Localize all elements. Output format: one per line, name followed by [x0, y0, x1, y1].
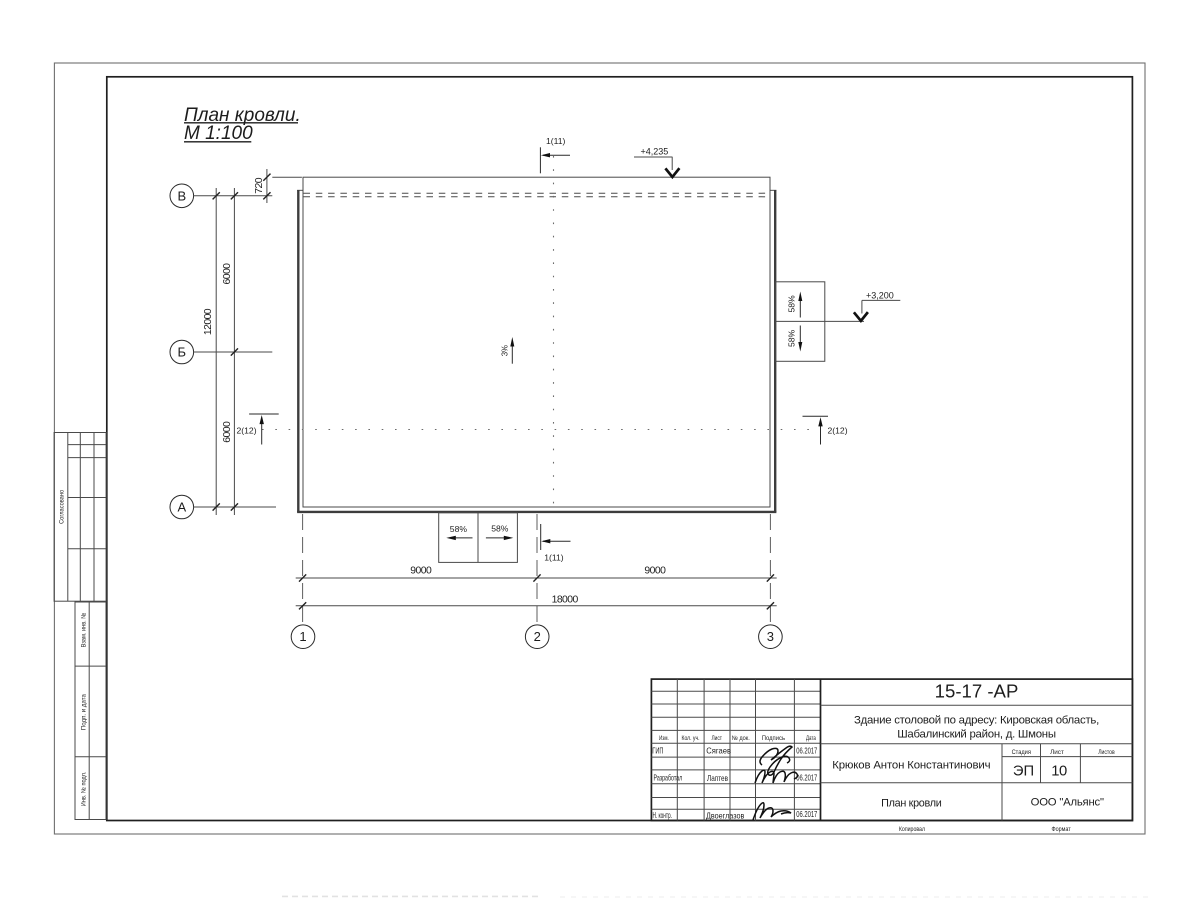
- svg-text:58%: 58%: [491, 524, 509, 534]
- svg-text:2: 2: [534, 629, 541, 644]
- svg-text:Дата: Дата: [806, 735, 816, 742]
- svg-text:Листов: Листов: [1098, 749, 1115, 756]
- svg-text:Шабалинский район, д. Шмоны: Шабалинский район, д. Шмоны: [897, 728, 1056, 740]
- svg-text:М 1:100: М 1:100: [184, 123, 253, 144]
- svg-text:ООО "Альянс": ООО "Альянс": [1031, 796, 1104, 808]
- svg-text:1: 1: [299, 629, 306, 644]
- svg-text:Стадия: Стадия: [1012, 749, 1032, 756]
- svg-text:Крюков Антон Константинович: Крюков Антон Константинович: [832, 760, 990, 772]
- svg-text:06.2017: 06.2017: [796, 746, 817, 755]
- svg-text:ГИП: ГИП: [652, 746, 663, 755]
- svg-text:Н. контр.: Н. контр.: [653, 811, 673, 820]
- svg-text:Изм.: Изм.: [659, 735, 669, 742]
- svg-text:9000: 9000: [644, 566, 666, 577]
- svg-text:А: А: [177, 500, 186, 515]
- svg-text:2(12): 2(12): [828, 426, 848, 436]
- svg-text:58%: 58%: [450, 524, 468, 534]
- svg-text:58%: 58%: [787, 329, 797, 347]
- svg-text:12000: 12000: [203, 308, 214, 335]
- svg-text:№ док.: № док.: [732, 735, 750, 742]
- svg-text:Кол. уч.: Кол. уч.: [682, 735, 700, 742]
- svg-text:ЭП: ЭП: [1013, 764, 1034, 780]
- svg-text:+4,235: +4,235: [641, 147, 669, 157]
- svg-text:План кровли: План кровли: [881, 798, 942, 810]
- svg-text:06.2017: 06.2017: [796, 774, 817, 783]
- svg-text:Подп. и дата: Подп. и дата: [81, 694, 88, 730]
- svg-text:+3,200: +3,200: [866, 291, 894, 301]
- svg-text:1(11): 1(11): [544, 552, 564, 562]
- svg-text:Лаптев: Лаптев: [707, 774, 728, 783]
- svg-text:15-17 -АР: 15-17 -АР: [935, 681, 1019, 702]
- svg-text:9000: 9000: [410, 566, 432, 577]
- svg-text:Лист: Лист: [712, 735, 723, 742]
- svg-text:2(12): 2(12): [237, 426, 257, 436]
- svg-text:Б: Б: [178, 345, 187, 360]
- svg-text:Лист: Лист: [1050, 749, 1064, 756]
- svg-text:Взам. инв. №: Взам. инв. №: [81, 613, 88, 648]
- svg-text:06.2017: 06.2017: [796, 810, 817, 819]
- svg-text:Сягаев: Сягаев: [706, 747, 731, 756]
- svg-text:Здание столовой по адресу: Кир: Здание столовой по адресу: Кировская обл…: [854, 715, 1099, 727]
- svg-text:720: 720: [254, 177, 265, 193]
- svg-text:Согласовано: Согласовано: [59, 490, 66, 524]
- svg-text:Разработал: Разработал: [654, 774, 683, 783]
- svg-text:18000: 18000: [552, 594, 579, 605]
- svg-text:Копировал: Копировал: [899, 826, 925, 833]
- svg-text:6000: 6000: [222, 421, 233, 443]
- svg-text:Инв. № подл.: Инв. № подл.: [81, 771, 88, 806]
- svg-text:Подпись: Подпись: [762, 735, 786, 742]
- svg-text:6000: 6000: [222, 263, 233, 285]
- svg-text:Двоеглазов: Двоеглазов: [706, 811, 744, 820]
- svg-text:3: 3: [767, 629, 774, 644]
- svg-text:10: 10: [1051, 764, 1067, 780]
- svg-text:В: В: [177, 188, 186, 203]
- svg-text:Формат: Формат: [1052, 826, 1071, 833]
- svg-text:58%: 58%: [787, 295, 797, 313]
- svg-text:1(11): 1(11): [546, 136, 566, 146]
- svg-text:3%: 3%: [500, 345, 509, 356]
